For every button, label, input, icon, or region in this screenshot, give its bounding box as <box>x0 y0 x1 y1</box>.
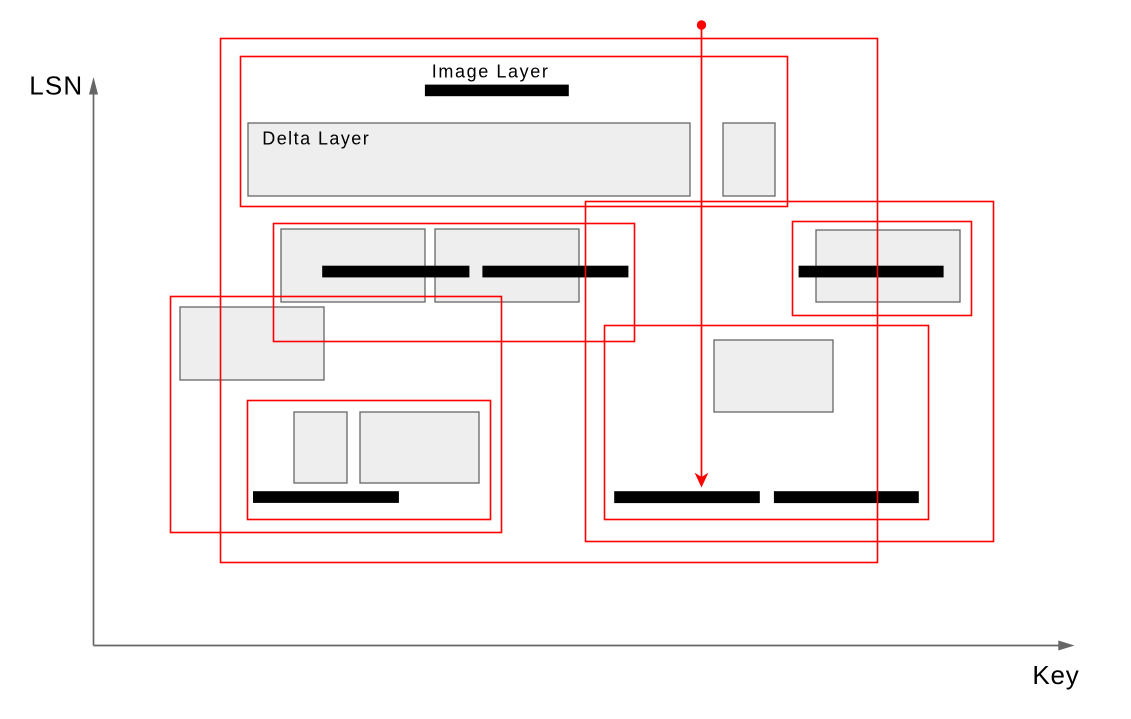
svg-text:Delta Layer: Delta Layer <box>262 129 370 149</box>
svg-text:LSN: LSN <box>29 70 83 100</box>
svg-text:Image Layer: Image Layer <box>432 61 550 81</box>
svg-text:Key: Key <box>1032 660 1079 690</box>
